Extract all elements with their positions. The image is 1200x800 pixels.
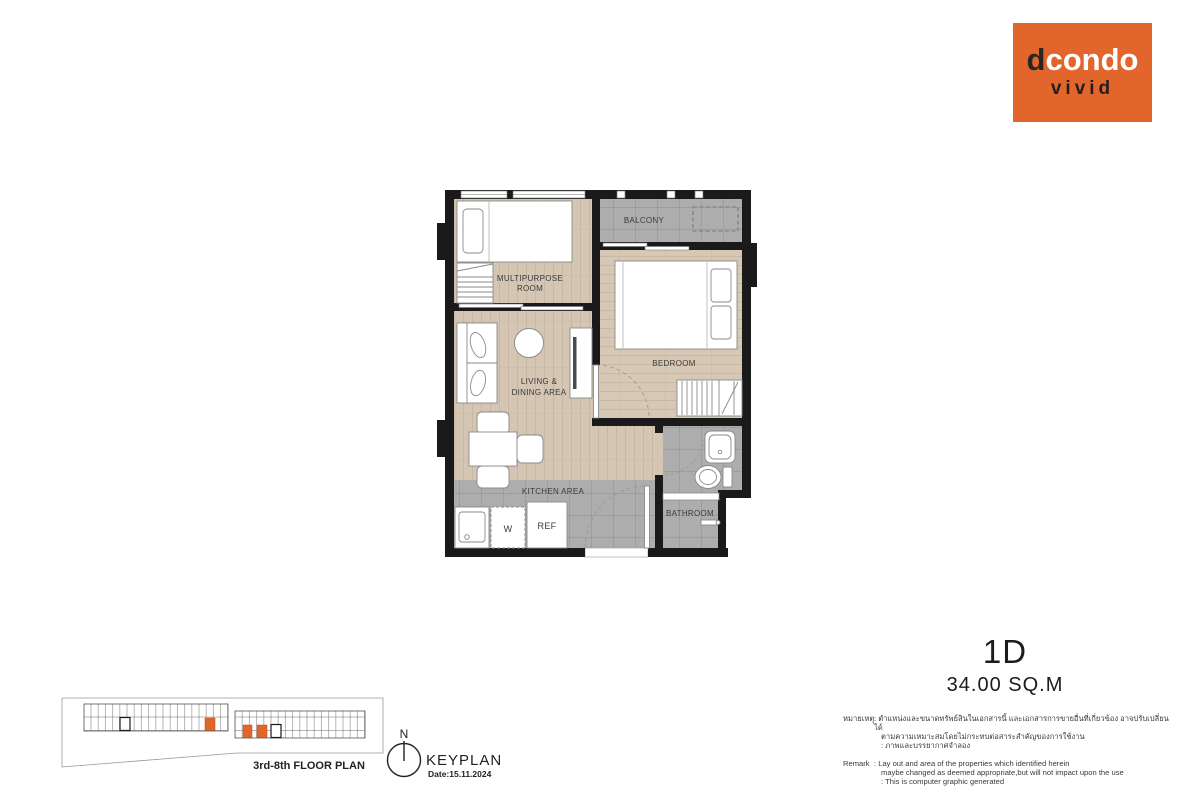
- keyplan-title: KEYPLAN: [426, 752, 502, 769]
- sofa: [457, 323, 497, 403]
- unit-name: 1D: [905, 633, 1105, 671]
- label-living-line1: LIVING &: [521, 377, 558, 386]
- remark-en-line: : Lay out and area of the properties whi…: [874, 759, 1173, 768]
- floorplan: MULTIPURPOSE ROOM BALCONY BEDROOM LIVING…: [437, 185, 757, 560]
- label-living-line2: DINING AREA: [512, 388, 567, 397]
- remark-thai-label: หมายเหตุ: [843, 714, 874, 750]
- single-bed: [457, 201, 572, 262]
- remark-en-label: Remark: [843, 759, 874, 786]
- label-bathroom: BATHROOM: [666, 509, 714, 518]
- label-bedroom: BEDROOM: [652, 359, 695, 368]
- unit-info: 1D 34.00 SQ.M: [905, 633, 1105, 697]
- remark-en-line: maybe changed as deemed appropriate,but …: [881, 768, 1173, 777]
- bathroom-sink: [705, 431, 735, 463]
- label-fridge: REF: [538, 521, 557, 531]
- remark-thai-line: : ภาพและบรรยากาศจำลอง: [881, 741, 1173, 750]
- brand-rest: condo: [1045, 42, 1138, 77]
- label-washer: W: [504, 524, 513, 534]
- brand-name: dcondo: [1027, 45, 1139, 75]
- coffee-table: [515, 329, 544, 358]
- brand-d: d: [1027, 42, 1046, 77]
- north-compass-icon: [388, 741, 421, 777]
- shower-partition: [663, 493, 719, 500]
- label-balcony: BALCONY: [624, 216, 665, 225]
- mp-wardrobe: [457, 263, 493, 303]
- shower-fixture: [701, 520, 720, 525]
- remark-thai-line: ตามความเหมาะสมโดยไม่กระทบต่อสาระสำคัญของ…: [881, 732, 1173, 741]
- highlighted-unit: [205, 718, 215, 731]
- highlighted-unit: [257, 725, 267, 738]
- keyplan-date: Date:15.11.2024: [428, 769, 492, 779]
- keyplan: 3rd-8th FLOOR PLAN N KEYPLAN Date:15.11.…: [55, 690, 515, 792]
- brand-logo: dcondo vivid: [1013, 23, 1152, 122]
- label-multipurpose-line2: ROOM: [517, 284, 543, 293]
- double-bed: [615, 261, 737, 349]
- bathroom-door-opening: [655, 433, 663, 475]
- keyplan-building-b: [235, 711, 365, 738]
- keyplan-floor-label: 3rd-8th FLOOR PLAN: [253, 760, 365, 772]
- brand-subname: vivid: [1051, 78, 1114, 100]
- label-kitchen: KITCHEN AREA: [522, 487, 585, 496]
- bedroom-wardrobe: [677, 380, 742, 416]
- keyplan-building-a: [84, 704, 228, 731]
- tv-console: [570, 328, 592, 398]
- remarks-block: หมายเหตุ : ตำแหน่งและขนาดทรัพย์สินในเอกส…: [843, 714, 1173, 786]
- toilet: [695, 466, 732, 489]
- remark-thai-line: : ตำแหน่งและขนาดทรัพย์สินในเอกสารนี้ และ…: [874, 714, 1173, 732]
- entry-door-opening: [585, 548, 648, 557]
- remark-thai: หมายเหตุ : ตำแหน่งและขนาดทรัพย์สินในเอกส…: [843, 714, 1173, 750]
- page: dcondo vivid: [0, 0, 1200, 800]
- remark-en-line: : This is computer graphic generated: [881, 777, 1173, 786]
- room-balcony-floor: [600, 199, 742, 242]
- label-multipurpose-line1: MULTIPURPOSE: [497, 274, 563, 283]
- remark-english: Remark : Lay out and area of the propert…: [843, 759, 1173, 786]
- highlighted-unit: [243, 725, 252, 738]
- north-label: N: [400, 727, 409, 741]
- unit-area: 34.00 SQ.M: [905, 674, 1105, 697]
